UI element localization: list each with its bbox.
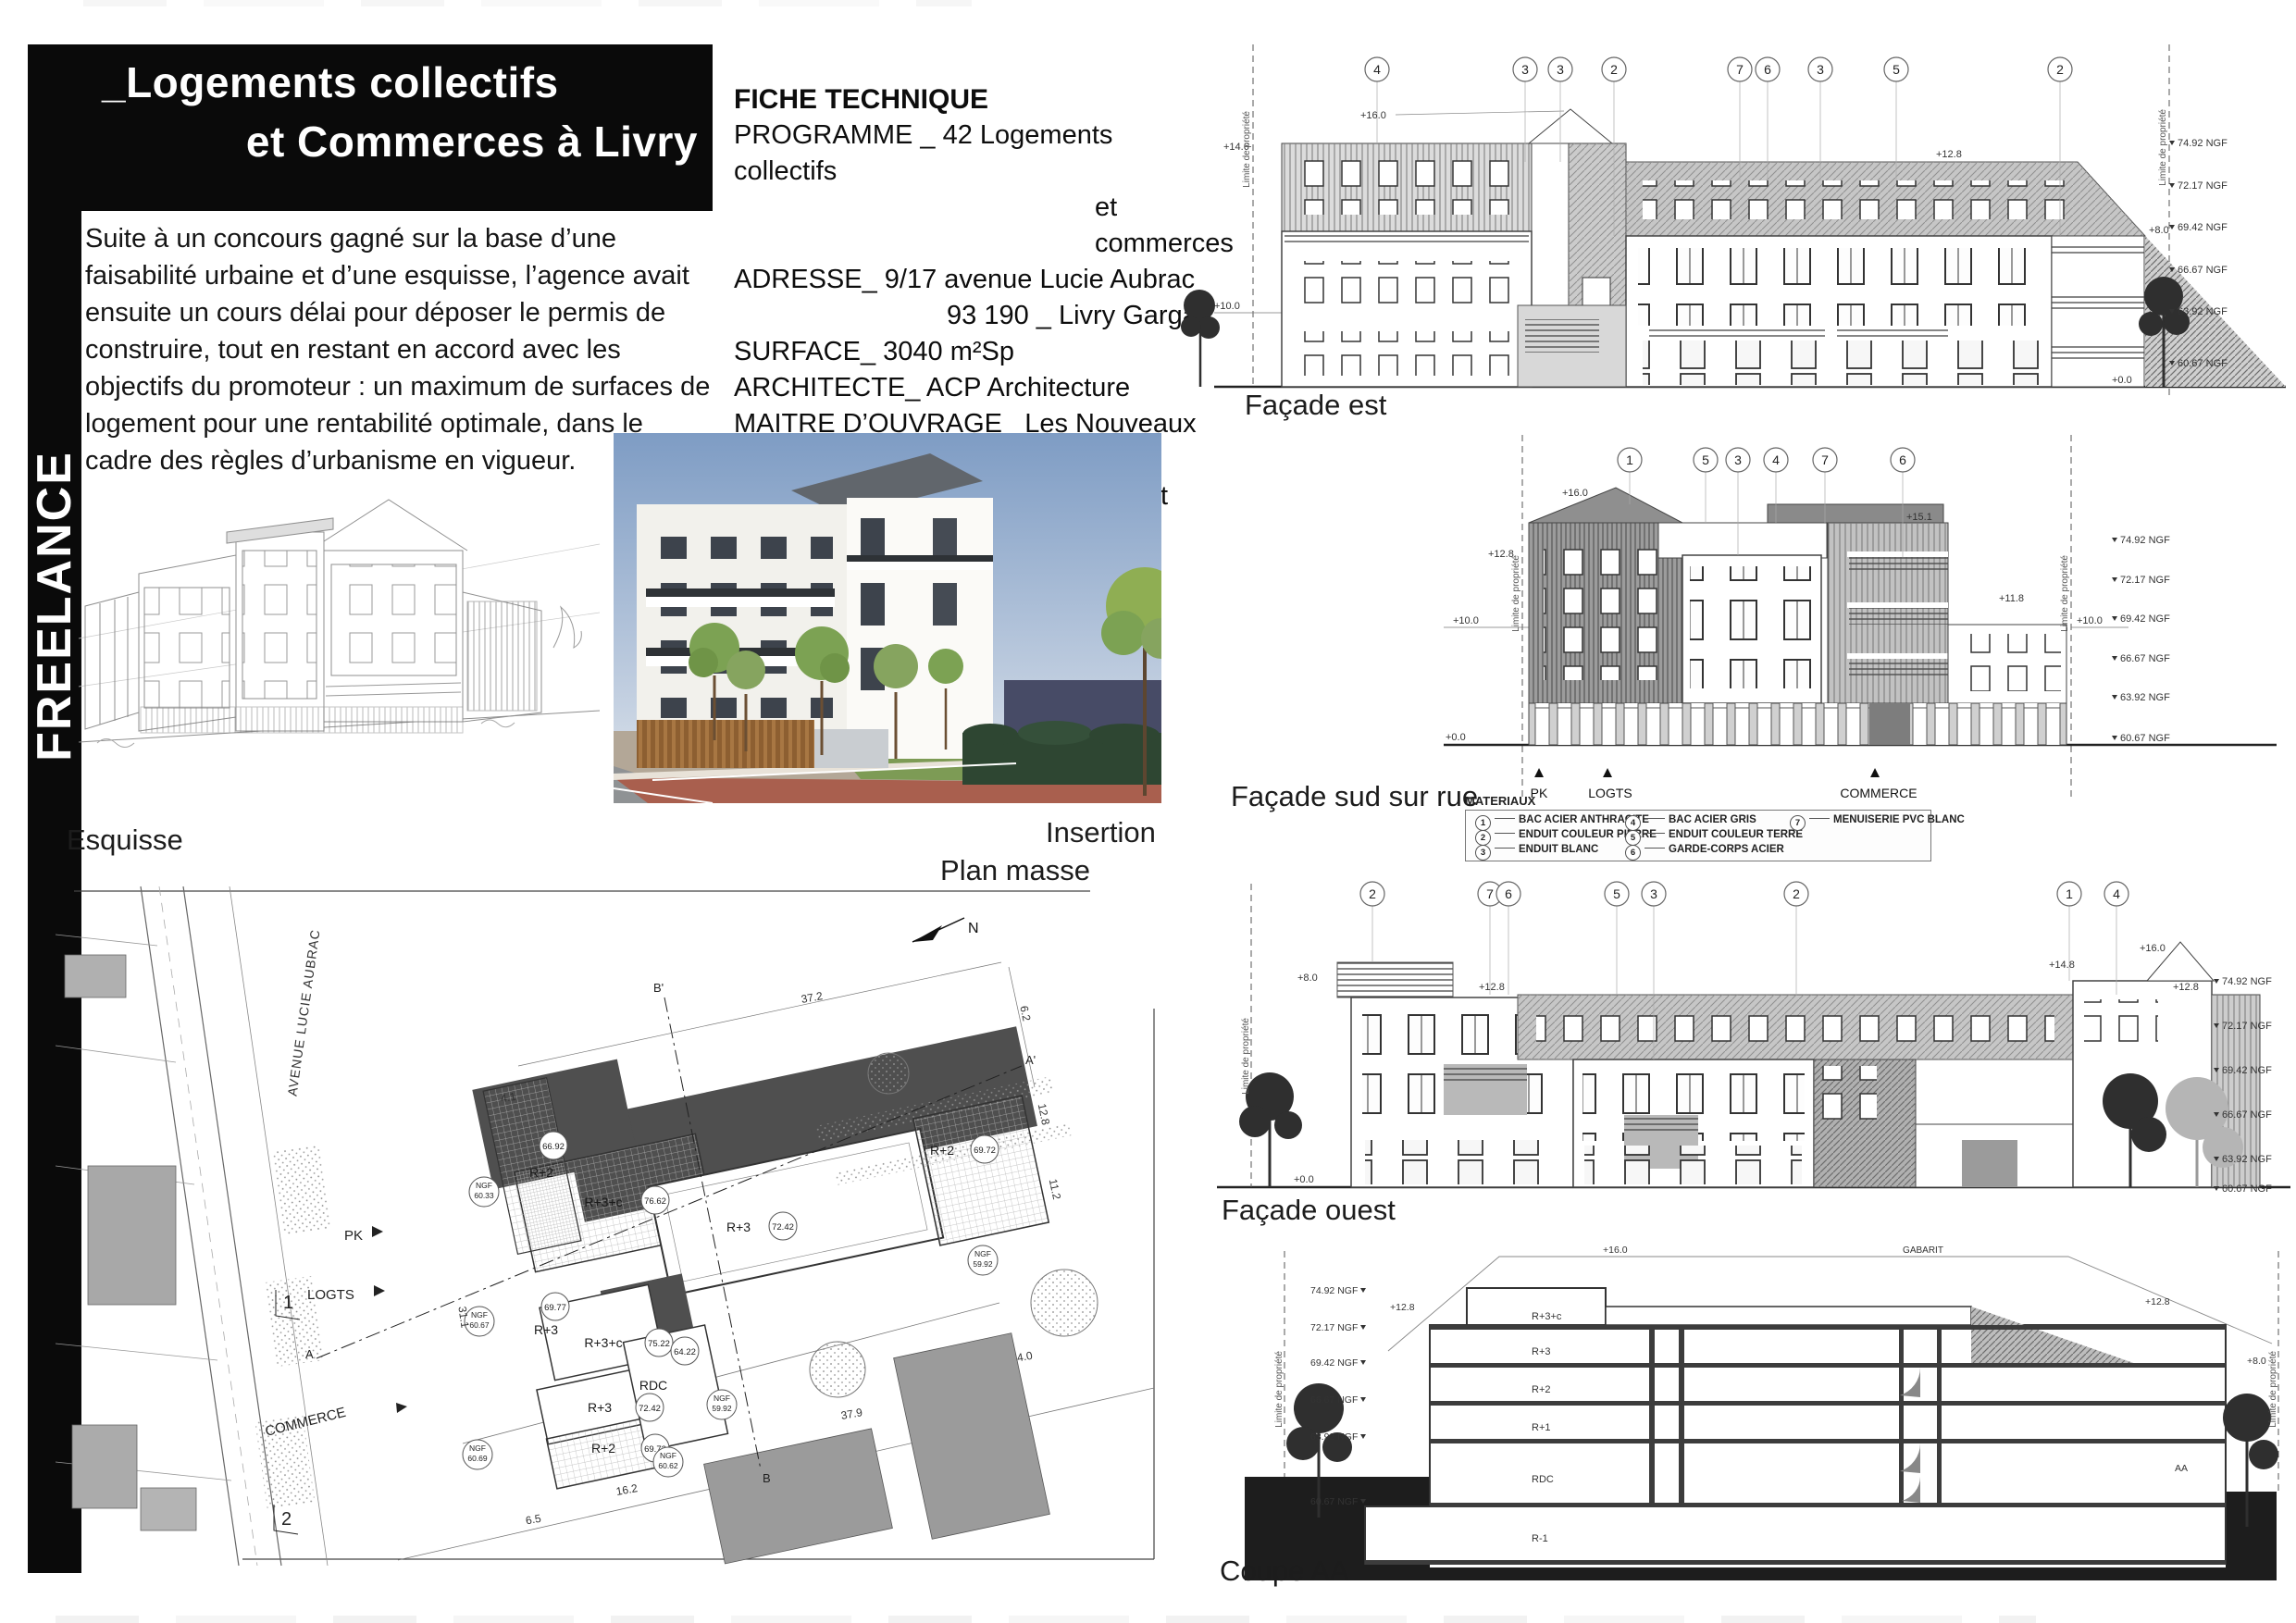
esquisse-caption: Esquisse	[67, 824, 183, 857]
svg-text:3: 3	[1557, 62, 1564, 77]
svg-text:R+2: R+2	[930, 1143, 954, 1158]
svg-text:66.92: 66.92	[542, 1142, 565, 1152]
material-item: 3ENDUIT BLANC	[1475, 844, 1598, 861]
facade-sud-caption: Façade sud sur rue	[1231, 780, 1478, 813]
svg-text:3: 3	[1817, 62, 1824, 77]
svg-text:A: A	[305, 1347, 314, 1361]
svg-text:6: 6	[1899, 452, 1906, 467]
material-num: 3	[1475, 845, 1491, 861]
svg-text:▲: ▲	[1868, 763, 1883, 781]
svg-text:GABARIT: GABARIT	[1903, 1245, 1943, 1256]
svg-text:4: 4	[1772, 452, 1780, 467]
avenue-label: AVENUE LUCIE AUBRAC	[284, 928, 322, 1097]
svg-text:RDC: RDC	[1532, 1474, 1554, 1485]
svg-text:60.67 NGF: 60.67 NGF	[2120, 733, 2170, 744]
svg-text:69.77: 69.77	[544, 1303, 566, 1313]
facade-est-building	[1181, 44, 2286, 398]
svg-text:R+2: R+2	[1532, 1384, 1551, 1395]
svg-text:4.1: 4.1	[500, 1090, 517, 1106]
svg-text:NGF: NGF	[469, 1443, 486, 1453]
scan-artifact-bottom	[56, 1616, 2036, 1623]
coupe-aa-caption: Coupe AA	[1220, 1555, 1349, 1588]
svg-text:B': B'	[653, 981, 664, 995]
svg-text:R+3: R+3	[1532, 1346, 1551, 1357]
svg-text:72.17 NGF: 72.17 NGF	[2222, 1021, 2272, 1032]
coupe-aa-drawing: R+3+c R+3 R+2 R+1 RDC R-1 GABARIT 74.92 …	[1212, 1240, 2296, 1610]
fiche-row: ADRESSE_ 9/17 avenue Lucie Aubrac	[734, 262, 1215, 298]
svg-text:+12.8: +12.8	[1936, 149, 1962, 160]
facade-est-drawing: 4 3 3 2 7 6 3 5 2 +14.6 +16.0 +10.0 +12.…	[1161, 32, 2296, 426]
svg-text:+12.8: +12.8	[2173, 982, 2199, 993]
svg-text:66.67 NGF: 66.67 NGF	[2178, 265, 2228, 276]
facade-est-caption: Façade est	[1245, 389, 1386, 422]
svg-text:72.17 NGF: 72.17 NGF	[1310, 1322, 1358, 1333]
svg-text:+12.8: +12.8	[1479, 982, 1505, 993]
svg-text:Limite de propriété: Limite de propriété	[2268, 1351, 2278, 1428]
svg-text:60.69: 60.69	[467, 1454, 488, 1463]
svg-text:N: N	[968, 921, 979, 936]
materials-box: 1BAC ACIER ANTHRACITE 2ENDUIT COULEUR PI…	[1465, 810, 1931, 861]
svg-text:6: 6	[1764, 62, 1771, 77]
svg-text:+10.0: +10.0	[1453, 615, 1479, 626]
insertion-caption: Insertion	[1046, 816, 1156, 849]
svg-text:76.62: 76.62	[644, 1196, 666, 1207]
svg-text:1: 1	[2066, 886, 2073, 901]
svg-text:R+3+c: R+3+c	[584, 1195, 622, 1209]
facade-sud-ngf: 74.92 NGF 72.17 NGF 69.42 NGF 66.67 NGF …	[2112, 535, 2170, 744]
materials-heading: MATERIAUX	[1465, 794, 1931, 808]
svg-text:3: 3	[1521, 62, 1529, 77]
svg-text:Limite de propriété: Limite de propriété	[2158, 109, 2168, 186]
svg-text:64.22: 64.22	[674, 1347, 696, 1357]
svg-text:6: 6	[1505, 886, 1512, 901]
svg-text:2: 2	[1369, 886, 1376, 901]
fiche-row: et commerces	[734, 190, 1215, 262]
svg-text:R+3: R+3	[534, 1322, 558, 1337]
svg-text:5: 5	[1893, 62, 1900, 77]
svg-text:74.92 NGF: 74.92 NGF	[2222, 976, 2272, 987]
svg-text:72.17 NGF: 72.17 NGF	[2178, 180, 2228, 192]
svg-text:+8.0: +8.0	[2247, 1356, 2266, 1367]
insertion-render	[614, 433, 1161, 803]
svg-text:R+2: R+2	[591, 1441, 615, 1456]
esquisse-sketch	[56, 435, 602, 828]
svg-text:NGF: NGF	[714, 1394, 730, 1403]
svg-text:60.67 NGF: 60.67 NGF	[2222, 1183, 2272, 1195]
svg-text:▲: ▲	[1600, 763, 1616, 781]
svg-text:+15.1: +15.1	[1906, 512, 1932, 523]
svg-text:37.9: 37.9	[840, 1406, 864, 1422]
project-title-line1: _Logements collectifs	[81, 44, 713, 107]
north-arrow: N	[912, 918, 979, 942]
svg-text:2: 2	[2056, 62, 2064, 77]
svg-text:60.67 NGF: 60.67 NGF	[1310, 1496, 1358, 1507]
materials-legend: MATERIAUX 1BAC ACIER ANTHRACITE 2ENDUIT …	[1465, 794, 1931, 861]
scan-artifact-top	[83, 0, 972, 6]
svg-text:72.42: 72.42	[772, 1222, 794, 1233]
coupe-building	[1245, 1251, 2278, 1580]
svg-text:3: 3	[1734, 452, 1742, 467]
svg-text:R+3+c: R+3+c	[1532, 1311, 1562, 1322]
svg-text:69.42 NGF: 69.42 NGF	[2120, 613, 2170, 625]
svg-text:A': A'	[1025, 1053, 1036, 1067]
svg-text:Limite de propriété: Limite de propriété	[1241, 1018, 1251, 1095]
svg-text:+16.0: +16.0	[1603, 1245, 1628, 1256]
svg-text:37.2: 37.2	[800, 989, 825, 1006]
portfolio-sheet: FREELANCE _Logements collectifs et Comme…	[0, 0, 2296, 1623]
svg-text:59.92: 59.92	[973, 1259, 993, 1269]
svg-text:5: 5	[1613, 886, 1620, 901]
svg-text:COMMERCE: COMMERCE	[264, 1405, 348, 1440]
material-item: 7MENUISERIE PVC BLANC	[1790, 814, 1965, 831]
facade-ouest-drawing: 2 7 6 5 3 2 1 4 +12.8 +8.0 +14.8 +16.0 +…	[1212, 870, 2296, 1238]
svg-text:72.17 NGF: 72.17 NGF	[2120, 575, 2170, 586]
svg-text:R+1: R+1	[1532, 1422, 1551, 1433]
svg-text:60.33: 60.33	[474, 1191, 494, 1200]
svg-text:2: 2	[1610, 62, 1618, 77]
svg-text:Limite de propriété: Limite de propriété	[2060, 555, 2070, 632]
svg-text:7: 7	[1821, 452, 1829, 467]
svg-text:63.92 NGF: 63.92 NGF	[2222, 1154, 2272, 1165]
material-num: 6	[1625, 845, 1641, 861]
svg-text:2: 2	[281, 1509, 292, 1530]
project-title-line2: et Commerces à Livry	[81, 107, 713, 167]
svg-text:NGF: NGF	[471, 1310, 488, 1319]
svg-text:R+3+c: R+3+c	[584, 1335, 622, 1350]
svg-text:4.0: 4.0	[1016, 1349, 1034, 1365]
svg-text:+14.8: +14.8	[2049, 960, 2075, 971]
svg-text:4: 4	[1373, 62, 1381, 77]
svg-text:▲: ▲	[1532, 763, 1547, 781]
svg-text:63.92 NGF: 63.92 NGF	[2120, 692, 2170, 703]
facade-ouest-building	[1217, 884, 2290, 1187]
svg-text:+16.0: +16.0	[1562, 488, 1588, 499]
fiche-heading: FICHE TECHNIQUE	[734, 81, 1215, 118]
fiche-row: SURFACE_ 3040 m²Sp	[734, 334, 1215, 370]
project-title-block: _Logements collectifs et Commerces à Liv…	[81, 44, 713, 211]
plan-masse-drawing: AVENUE LUCIE AUBRAC	[56, 879, 1166, 1582]
svg-text:+12.8: +12.8	[2145, 1296, 2170, 1307]
svg-text:R+3: R+3	[726, 1220, 751, 1234]
svg-text:+12.8: +12.8	[1488, 549, 1514, 560]
material-num: 7	[1790, 815, 1806, 831]
svg-text:63.92 NGF: 63.92 NGF	[2178, 306, 2228, 317]
svg-text:66.67 NGF: 66.67 NGF	[1310, 1394, 1358, 1406]
svg-text:7: 7	[1486, 886, 1494, 901]
svg-text:Limite de propriété: Limite de propriété	[1274, 1351, 1285, 1428]
svg-text:LOGTS: LOGTS	[307, 1287, 354, 1303]
svg-text:NGF: NGF	[476, 1181, 492, 1190]
svg-text:74.92 NGF: 74.92 NGF	[2178, 138, 2228, 149]
svg-text:R-1: R-1	[1532, 1533, 1548, 1544]
sketch-lines	[79, 500, 600, 748]
svg-text:1: 1	[1626, 452, 1633, 467]
svg-text:2: 2	[1793, 886, 1800, 901]
svg-text:R+2: R+2	[529, 1165, 553, 1180]
svg-text:11.2: 11.2	[1047, 1178, 1063, 1201]
svg-text:69.42 NGF: 69.42 NGF	[1310, 1357, 1358, 1369]
svg-text:+0.0: +0.0	[1294, 1174, 1314, 1185]
svg-text:+12.8: +12.8	[1390, 1302, 1415, 1313]
svg-text:74.92 NGF: 74.92 NGF	[2120, 535, 2170, 546]
svg-text:NGF: NGF	[974, 1249, 991, 1258]
svg-text:12.8: 12.8	[1036, 1102, 1053, 1126]
svg-text:16.2: 16.2	[615, 1481, 639, 1498]
svg-text:63.92 NGF: 63.92 NGF	[1310, 1431, 1358, 1443]
svg-text:+0.0: +0.0	[1446, 732, 1466, 743]
facade-sud-drawing: 1 5 3 4 7 6 +16.0 +12.8 +10.0 +15.1 +11.…	[1439, 426, 2296, 837]
svg-text:PK: PK	[344, 1228, 363, 1244]
svg-text:69.72: 69.72	[974, 1146, 996, 1156]
svg-text:NGF: NGF	[660, 1451, 676, 1460]
svg-text:B: B	[763, 1471, 771, 1485]
svg-text:R+3: R+3	[588, 1400, 612, 1415]
fiche-row: PROGRAMME _ 42 Logements collectifs	[734, 118, 1215, 190]
svg-text:Limite de propriété: Limite de propriété	[1511, 555, 1521, 632]
svg-text:3: 3	[1650, 886, 1657, 901]
facade-ouest-caption: Façade ouest	[1222, 1194, 1396, 1227]
svg-text:66.67 NGF: 66.67 NGF	[2222, 1109, 2272, 1121]
insertion-scene	[614, 433, 1161, 803]
svg-text:RDC: RDC	[639, 1378, 667, 1393]
svg-text:69.42 NGF: 69.42 NGF	[2222, 1065, 2272, 1076]
svg-text:31.1: 31.1	[455, 1306, 471, 1329]
svg-text:AA: AA	[2175, 1463, 2188, 1474]
svg-text:+8.0: +8.0	[2149, 225, 2169, 236]
svg-text:+10.0: +10.0	[2077, 615, 2103, 626]
svg-text:60.67: 60.67	[469, 1320, 490, 1330]
svg-text:60.62: 60.62	[658, 1461, 678, 1470]
svg-text:6.5: 6.5	[525, 1512, 542, 1528]
material-item: 6GARDE-CORPS ACIER	[1625, 844, 1784, 861]
svg-text:75.22: 75.22	[648, 1339, 670, 1349]
svg-text:69.42 NGF: 69.42 NGF	[2178, 222, 2228, 233]
svg-text:4: 4	[2113, 886, 2120, 901]
svg-text:60.67 NGF: 60.67 NGF	[2178, 358, 2228, 369]
svg-text:72.42: 72.42	[639, 1404, 661, 1414]
svg-text:6.2: 6.2	[1017, 1005, 1033, 1023]
svg-text:+0.0: +0.0	[2112, 375, 2132, 386]
svg-text:5: 5	[1702, 452, 1709, 467]
svg-text:1: 1	[283, 1293, 293, 1313]
svg-text:74.92 NGF: 74.92 NGF	[1310, 1285, 1358, 1296]
svg-text:+11.8: +11.8	[1999, 593, 2024, 604]
fiche-row: 93 190 _ Livry Gargan	[734, 298, 1215, 334]
svg-text:7: 7	[1736, 62, 1744, 77]
svg-text:+16.0: +16.0	[1360, 110, 1386, 121]
svg-text:+10.0: +10.0	[1214, 301, 1240, 312]
svg-text:+8.0: +8.0	[1297, 973, 1318, 984]
svg-text:Limite de propriété: Limite de propriété	[1242, 111, 1252, 188]
svg-text:59.92: 59.92	[712, 1404, 732, 1413]
svg-text:66.67 NGF: 66.67 NGF	[2120, 653, 2170, 664]
svg-text:+16.0: +16.0	[2140, 943, 2166, 954]
fiche-row: ARCHITECTE_ ACP Architecture	[734, 370, 1215, 406]
